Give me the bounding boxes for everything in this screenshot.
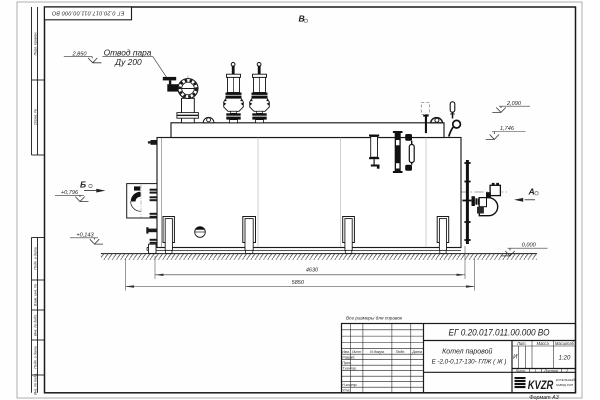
svg-text:Листов: Листов [543,369,558,373]
svg-text:Лит.: Лит. [516,341,527,346]
svg-text:Взам. инв. №: Взам. инв. № [33,284,37,306]
svg-text:+0,143: +0,143 [76,232,94,238]
svg-text:Утв.: Утв. [342,389,350,393]
svg-text:Е -2,0-0,17-130- ГЛЖ ( Ж ): Е -2,0-0,17-130- ГЛЖ ( Ж ) [432,359,507,366]
svg-text:5850: 5850 [292,280,305,286]
svg-text:Формат А3: Формат А3 [529,395,559,400]
svg-text:Котел паровой: Котел паровой [442,348,492,356]
svg-text:0,000: 0,000 [522,243,537,249]
svg-text:Отвод пара: Отвод пара [104,47,152,57]
svg-text:Лист: Лист [351,350,361,354]
svg-text:Подп. и дата: Подп. и дата [33,346,37,369]
svg-text:Подп. и дата: Подп. и дата [33,247,37,270]
svg-text:ЕГ 0.20.017.011.00.000 ВО: ЕГ 0.20.017.011.00.000 ВО [449,328,550,339]
svg-text:Лист: Лист [515,369,526,373]
svg-text:Справ. №: Справ. № [33,109,37,125]
svg-text:Разраб.: Разраб. [342,356,355,360]
svg-text:1: 1 [534,369,536,373]
svg-text:А: А [528,187,535,197]
svg-text:KVZR: KVZR [528,380,554,392]
svg-text:Масштаб: Масштаб [555,341,575,346]
svg-text:Т.контр.: Т.контр. [342,367,357,371]
svg-text:Масса: Масса [537,341,550,346]
svg-text:Все размеры для справок: Все размеры для справок [346,316,403,321]
svg-text:И: И [513,355,518,361]
svg-text:Н.контр.: Н.контр. [342,383,357,387]
svg-text:+0,796: +0,796 [61,190,79,196]
svg-text:1:20: 1:20 [559,356,571,362]
svg-text:Пров.: Пров. [342,361,351,365]
svg-text:Инв. № подл.: Инв. № подл. [33,373,37,395]
svg-text:В: В [299,14,305,24]
svg-text:N докум.: N докум. [370,350,385,354]
svg-text:Б: Б [80,180,86,190]
svg-text:Дата: Дата [411,350,421,354]
svg-text:КОТЕЛЬНЫЙ: КОТЕЛЬНЫЙ [556,378,576,382]
svg-text:Подп.: Подп. [396,350,406,354]
svg-text:Перв. примен.: Перв. примен. [33,32,37,56]
svg-text:Ду 200: Ду 200 [114,57,142,67]
svg-text:ЕГ 0.20.017.011.00.000 ВО: ЕГ 0.20.017.011.00.000 ВО [51,9,124,15]
svg-text:4630: 4630 [306,268,319,274]
svg-text:Инв. № дубл.: Инв. № дубл. [33,314,37,336]
svg-text:Изм.: Изм. [342,350,350,354]
svg-text:ЗАВОД РЭП: ЗАВОД РЭП [556,383,574,387]
